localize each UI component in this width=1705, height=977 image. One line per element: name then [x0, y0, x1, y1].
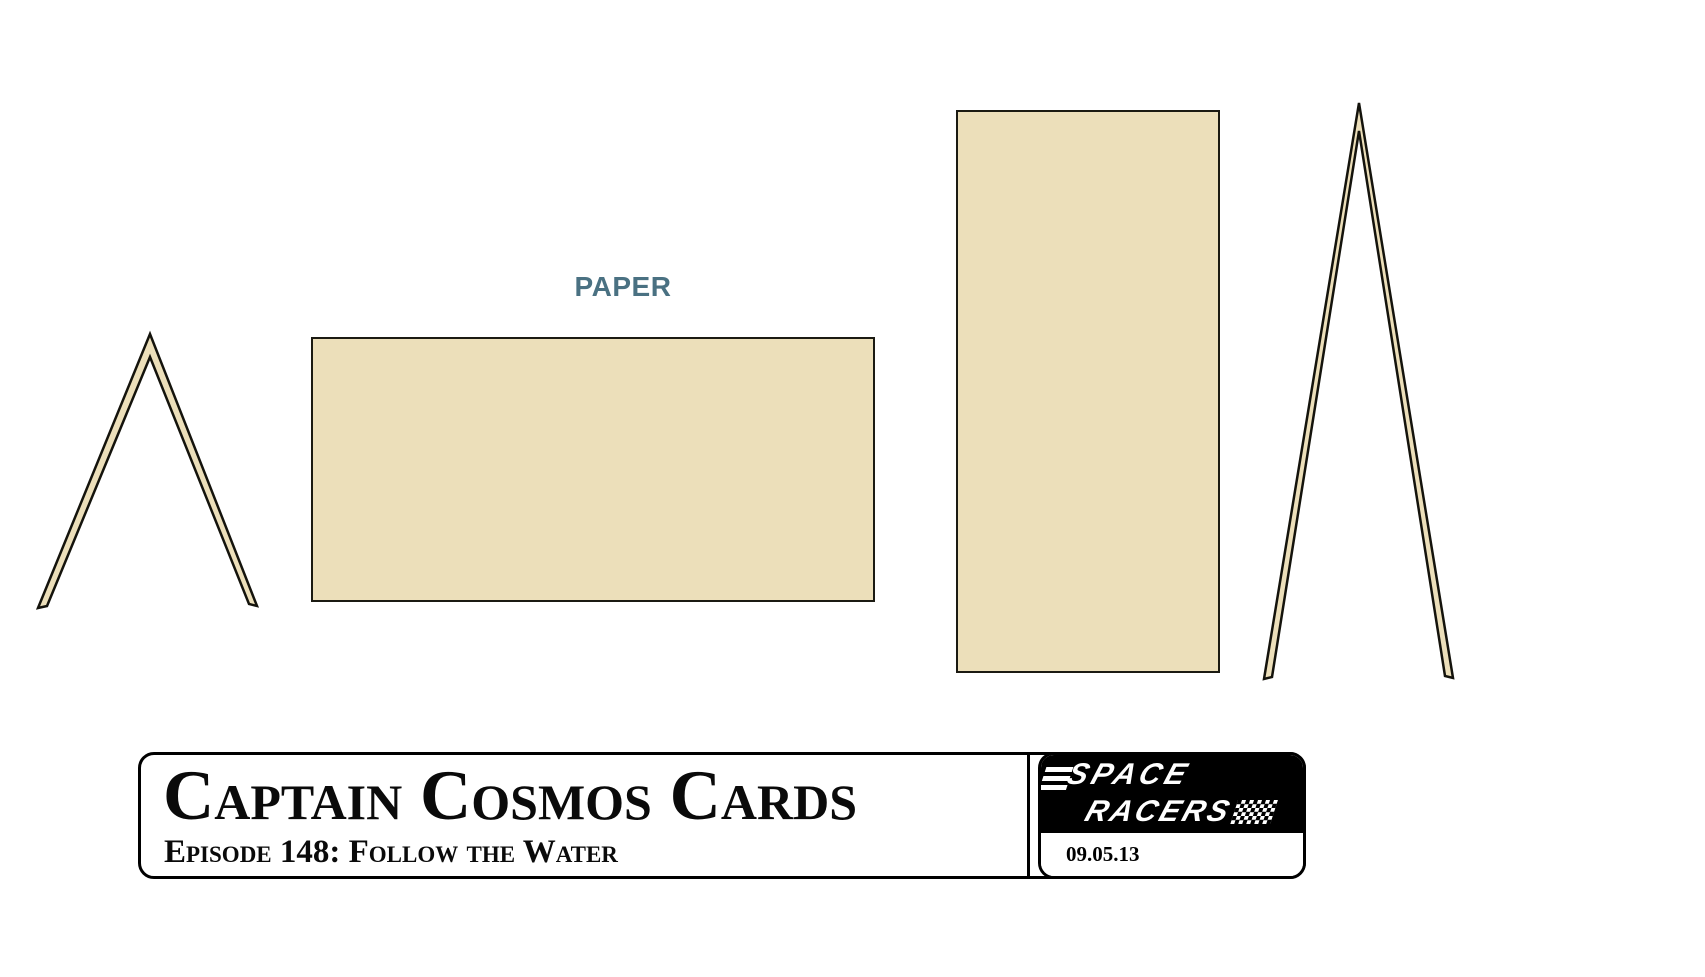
folded-strip-shape: [1264, 103, 1453, 679]
logo-word-racers-row: RACERS: [1081, 797, 1278, 827]
date-value: 09.05.13: [1066, 842, 1140, 866]
paper-sheet-landscape: [311, 337, 875, 602]
space-racers-logo: SPACE RACERS: [1041, 755, 1303, 833]
logo-word-space: SPACE: [1063, 760, 1194, 790]
logo-word-racers: RACERS: [1081, 797, 1235, 827]
folded-card-tent-left: [30, 328, 265, 615]
title-block-right-column: SPACE RACERS 09.05.13: [1038, 752, 1306, 879]
episode-subtitle: Episode 148: Follow the Water: [164, 835, 618, 869]
page-title: Captain Cosmos Cards: [163, 758, 857, 834]
date-box: 09.05.13: [1041, 833, 1303, 876]
prop-template-sheet: PAPER Captain Cosmos Cards Episode 148: …: [0, 0, 1705, 977]
paper-label: PAPER: [563, 272, 683, 302]
paper-sheet-portrait: [956, 110, 1220, 673]
folded-card-tent-right: [1255, 95, 1465, 690]
folded-strip-shape: [38, 334, 257, 608]
checkered-flag-icon: [1230, 800, 1278, 824]
title-block-divider: [1027, 752, 1030, 879]
